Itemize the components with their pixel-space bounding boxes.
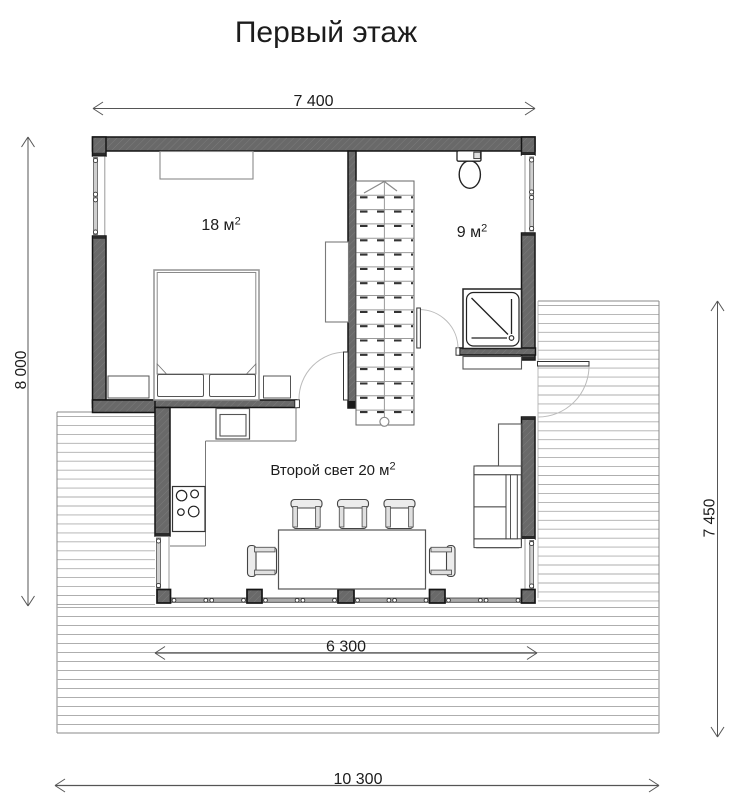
svg-text:7 450: 7 450 <box>701 498 718 537</box>
svg-text:10 300: 10 300 <box>334 771 383 788</box>
svg-text:Первый этаж: Первый этаж <box>235 16 417 49</box>
svg-text:8 000: 8 000 <box>13 350 30 389</box>
svg-text:Второй свет 20 м2: Второй свет 20 м2 <box>270 461 395 480</box>
svg-text:7 400: 7 400 <box>293 93 333 110</box>
svg-text:6 300: 6 300 <box>326 639 366 656</box>
